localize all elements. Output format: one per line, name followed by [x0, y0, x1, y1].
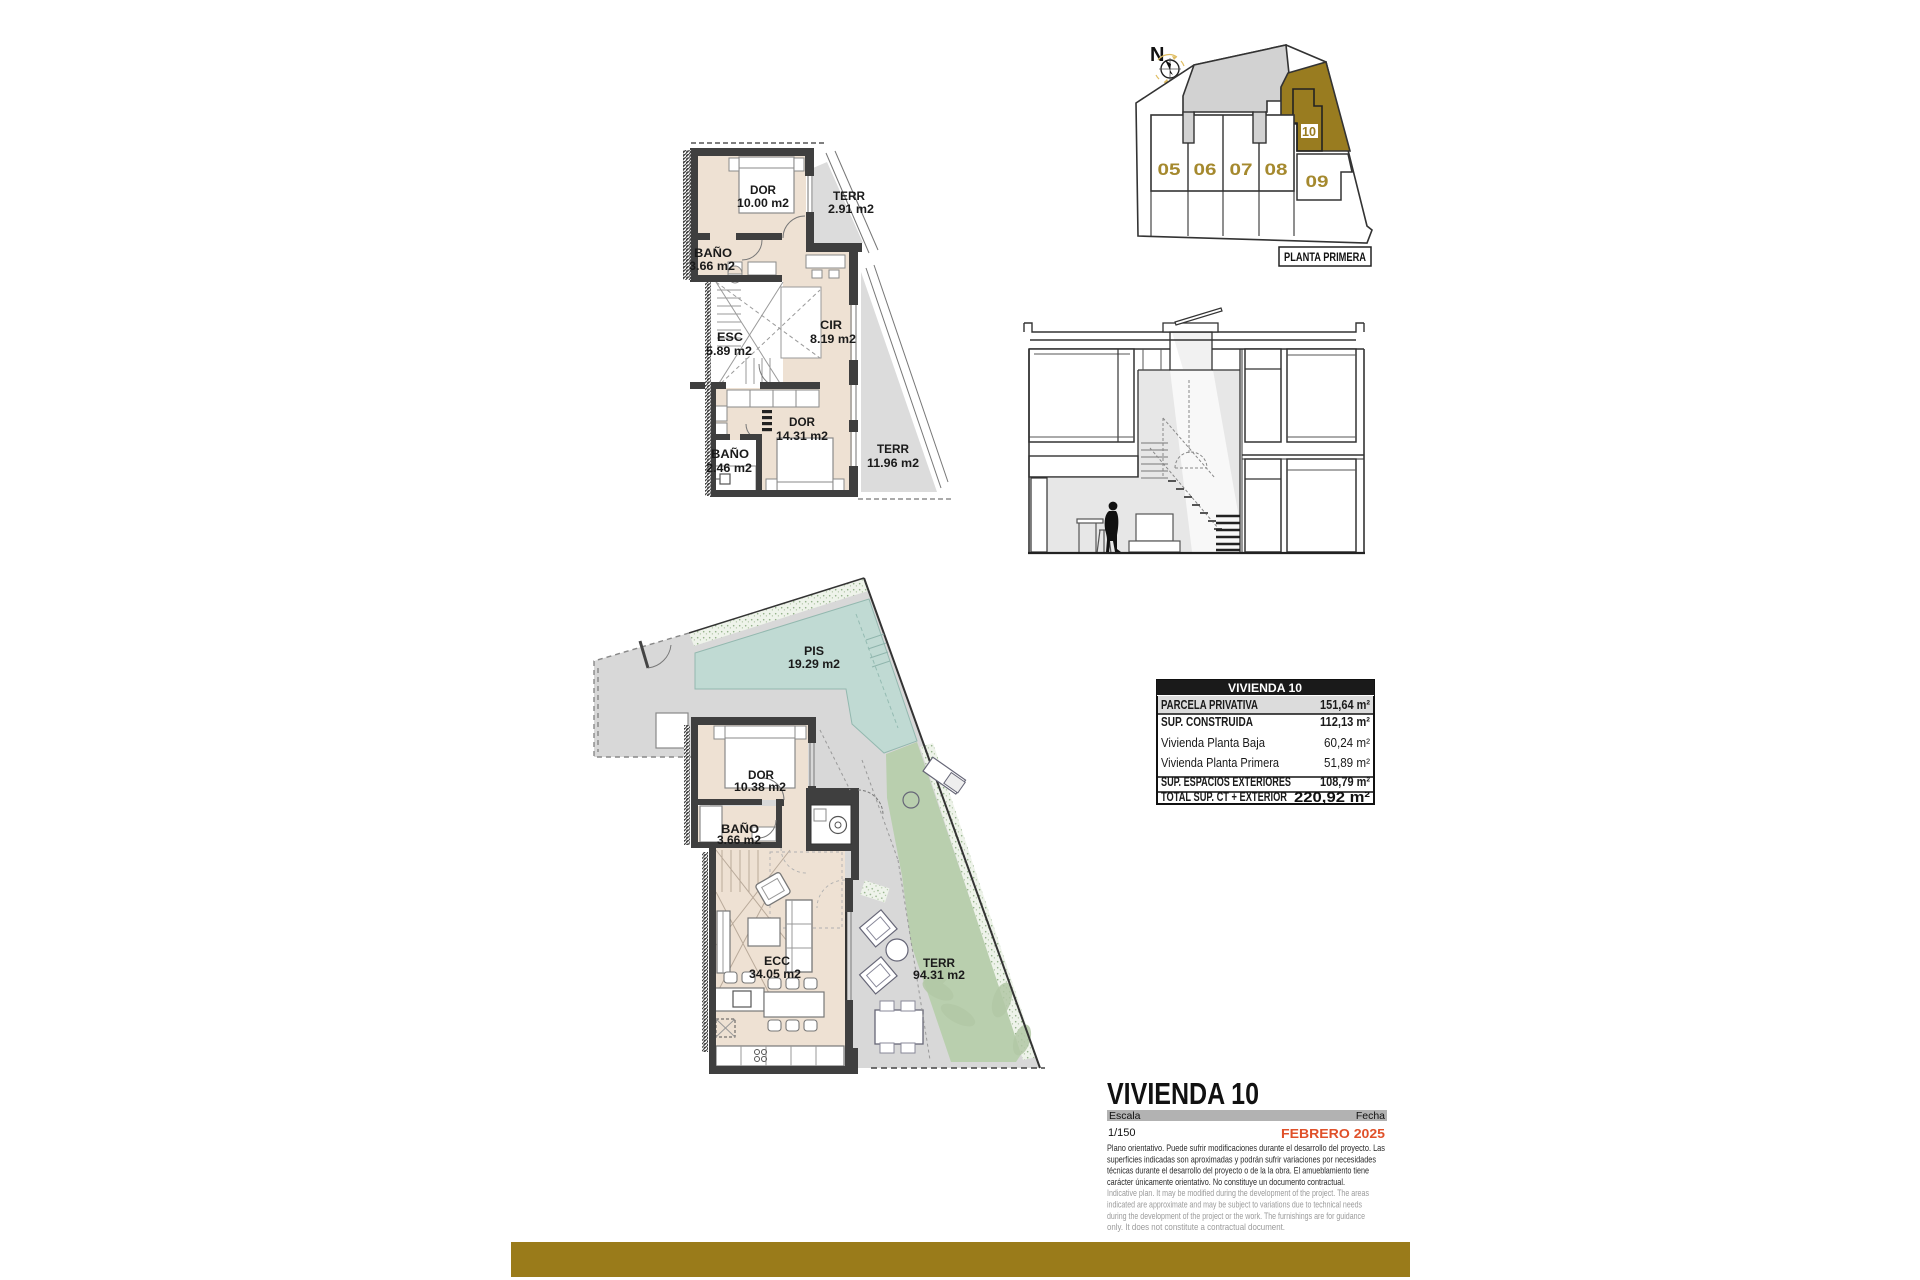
svg-text:carácter únicamente orientativ: carácter únicamente orientativo. No cons…	[1107, 1177, 1345, 1188]
svg-text:VIVIENDA 10: VIVIENDA 10	[1107, 1076, 1259, 1111]
svg-text:34.05 m2: 34.05 m2	[749, 967, 801, 981]
svg-text:8.19 m2: 8.19 m2	[810, 332, 856, 346]
svg-text:superficies indicadas son apro: superficies indicadas son aproximadas y …	[1107, 1154, 1376, 1165]
svg-text:Escala: Escala	[1109, 1110, 1141, 1122]
svg-text:2.91 m2: 2.91 m2	[828, 202, 874, 216]
svg-text:10.38 m2: 10.38 m2	[734, 780, 786, 794]
svg-text:VIVIENDA 10: VIVIENDA 10	[1228, 681, 1302, 695]
svg-text:N: N	[1150, 44, 1164, 66]
svg-text:CIR: CIR	[820, 318, 842, 332]
svg-text:05: 05	[1158, 160, 1181, 179]
svg-text:SUP. CONSTRUIDA: SUP. CONSTRUIDA	[1161, 715, 1253, 729]
svg-text:10: 10	[1302, 124, 1316, 139]
svg-text:Fecha: Fecha	[1356, 1110, 1385, 1122]
svg-text:1/150: 1/150	[1108, 1127, 1136, 1139]
svg-text:5.89 m2: 5.89 m2	[706, 344, 752, 358]
svg-text:09: 09	[1306, 172, 1329, 191]
svg-text:DOR: DOR	[789, 415, 815, 429]
svg-text:TOTAL SUP. CT + EXTERIOR: TOTAL SUP. CT + EXTERIOR	[1161, 790, 1287, 804]
svg-text:2.46 m2: 2.46 m2	[706, 461, 752, 475]
svg-text:Indicative plan. It may be mod: Indicative plan. It may be modified duri…	[1107, 1188, 1369, 1199]
svg-text:08: 08	[1265, 160, 1288, 179]
svg-text:PIS: PIS	[804, 644, 824, 658]
svg-text:during the development of the: during the development of the project or…	[1107, 1211, 1365, 1222]
svg-text:ESC: ESC	[717, 330, 743, 344]
svg-text:FEBRERO 2025: FEBRERO 2025	[1281, 1126, 1385, 1141]
svg-text:3.66 m2: 3.66 m2	[717, 833, 761, 847]
svg-text:112,13 m²: 112,13 m²	[1320, 715, 1370, 729]
svg-text:10.00 m2: 10.00 m2	[737, 196, 789, 210]
svg-text:3.66 m2: 3.66 m2	[689, 259, 735, 273]
svg-text:Vivienda Planta Baja: Vivienda Planta Baja	[1161, 736, 1265, 750]
svg-text:DOR: DOR	[750, 183, 776, 197]
svg-text:60,24 m²: 60,24 m²	[1324, 736, 1370, 750]
svg-text:14.31 m2: 14.31 m2	[776, 429, 828, 443]
svg-text:BAÑO: BAÑO	[694, 245, 732, 260]
svg-text:220,92 m²: 220,92 m²	[1294, 789, 1370, 806]
svg-text:151,64 m²: 151,64 m²	[1320, 698, 1370, 712]
svg-text:ECC: ECC	[764, 954, 790, 968]
svg-text:PARCELA PRIVATIVA: PARCELA PRIVATIVA	[1161, 698, 1258, 712]
svg-text:only. It does not constitute a: only. It does not constitute a contractu…	[1107, 1222, 1285, 1233]
svg-text:11.96 m2: 11.96 m2	[867, 456, 919, 470]
svg-text:TERR: TERR	[877, 442, 909, 456]
svg-text:técnicas durante el desarrollo: técnicas durante el desarrollo del proye…	[1107, 1166, 1369, 1177]
svg-text:BAÑO: BAÑO	[711, 446, 749, 461]
svg-text:PLANTA PRIMERA: PLANTA PRIMERA	[1284, 250, 1366, 264]
svg-text:TERR: TERR	[833, 189, 865, 203]
svg-text:06: 06	[1194, 160, 1217, 179]
svg-text:94.31 m2: 94.31 m2	[913, 968, 965, 982]
svg-text:19.29 m2: 19.29 m2	[788, 657, 840, 671]
svg-text:indicated are approximate and: indicated are approximate and may be sub…	[1107, 1200, 1362, 1211]
svg-text:SUP. ESPACIOS EXTERIORES: SUP. ESPACIOS EXTERIORES	[1161, 775, 1291, 789]
svg-text:Vivienda Planta Primera: Vivienda Planta Primera	[1161, 756, 1279, 770]
svg-text:51,89 m²: 51,89 m²	[1324, 756, 1370, 770]
svg-text:Plano orientativo. Puede sufri: Plano orientativo. Puede sufrir modifica…	[1107, 1143, 1385, 1154]
svg-text:07: 07	[1230, 160, 1253, 179]
svg-text:108,79 m²: 108,79 m²	[1320, 775, 1370, 789]
